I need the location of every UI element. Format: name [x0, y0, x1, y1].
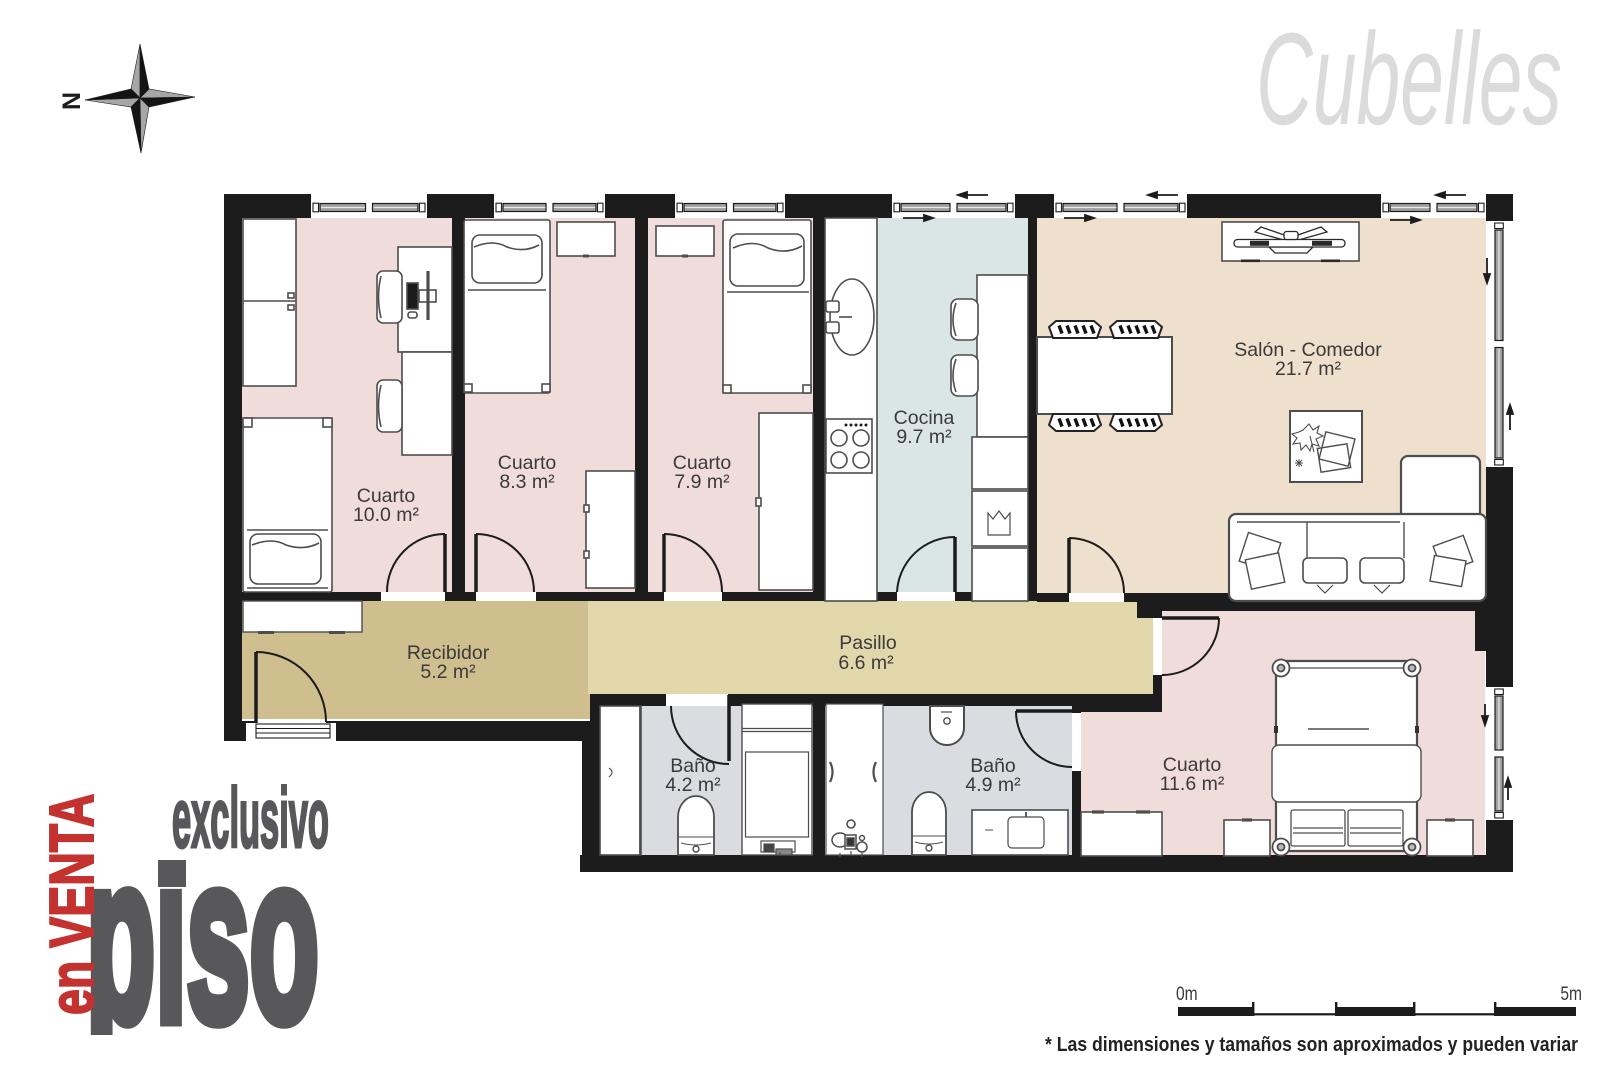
- svg-text:7.9 m²: 7.9 m²: [674, 471, 730, 493]
- svg-text:9.7 m²: 9.7 m²: [896, 426, 952, 448]
- svg-text:10.0 m²: 10.0 m²: [353, 504, 420, 526]
- svg-text:11.6 m²: 11.6 m²: [1160, 773, 1225, 795]
- svg-text:8.3 m²: 8.3 m²: [499, 471, 555, 493]
- svg-text:en VENTA: en VENTA: [36, 794, 106, 1015]
- svg-text:N: N: [58, 92, 86, 110]
- svg-text:Pasillo: Pasillo: [839, 632, 897, 654]
- svg-text:6.6 m²: 6.6 m²: [838, 652, 894, 674]
- svg-text:Cubelles: Cubelles: [1256, 5, 1562, 152]
- svg-text:4.9 m²: 4.9 m²: [965, 774, 1021, 796]
- svg-text:5.2 m²: 5.2 m²: [420, 661, 476, 683]
- svg-text:0m: 0m: [1176, 983, 1198, 1005]
- svg-text:5m: 5m: [1560, 983, 1582, 1005]
- svg-text:21.7 m²: 21.7 m²: [1275, 358, 1342, 380]
- svg-text:4.2 m²: 4.2 m²: [665, 774, 721, 796]
- svg-text:* Las dimensiones y tamaños so: * Las dimensiones y tamaños son aproxima…: [1045, 1033, 1578, 1056]
